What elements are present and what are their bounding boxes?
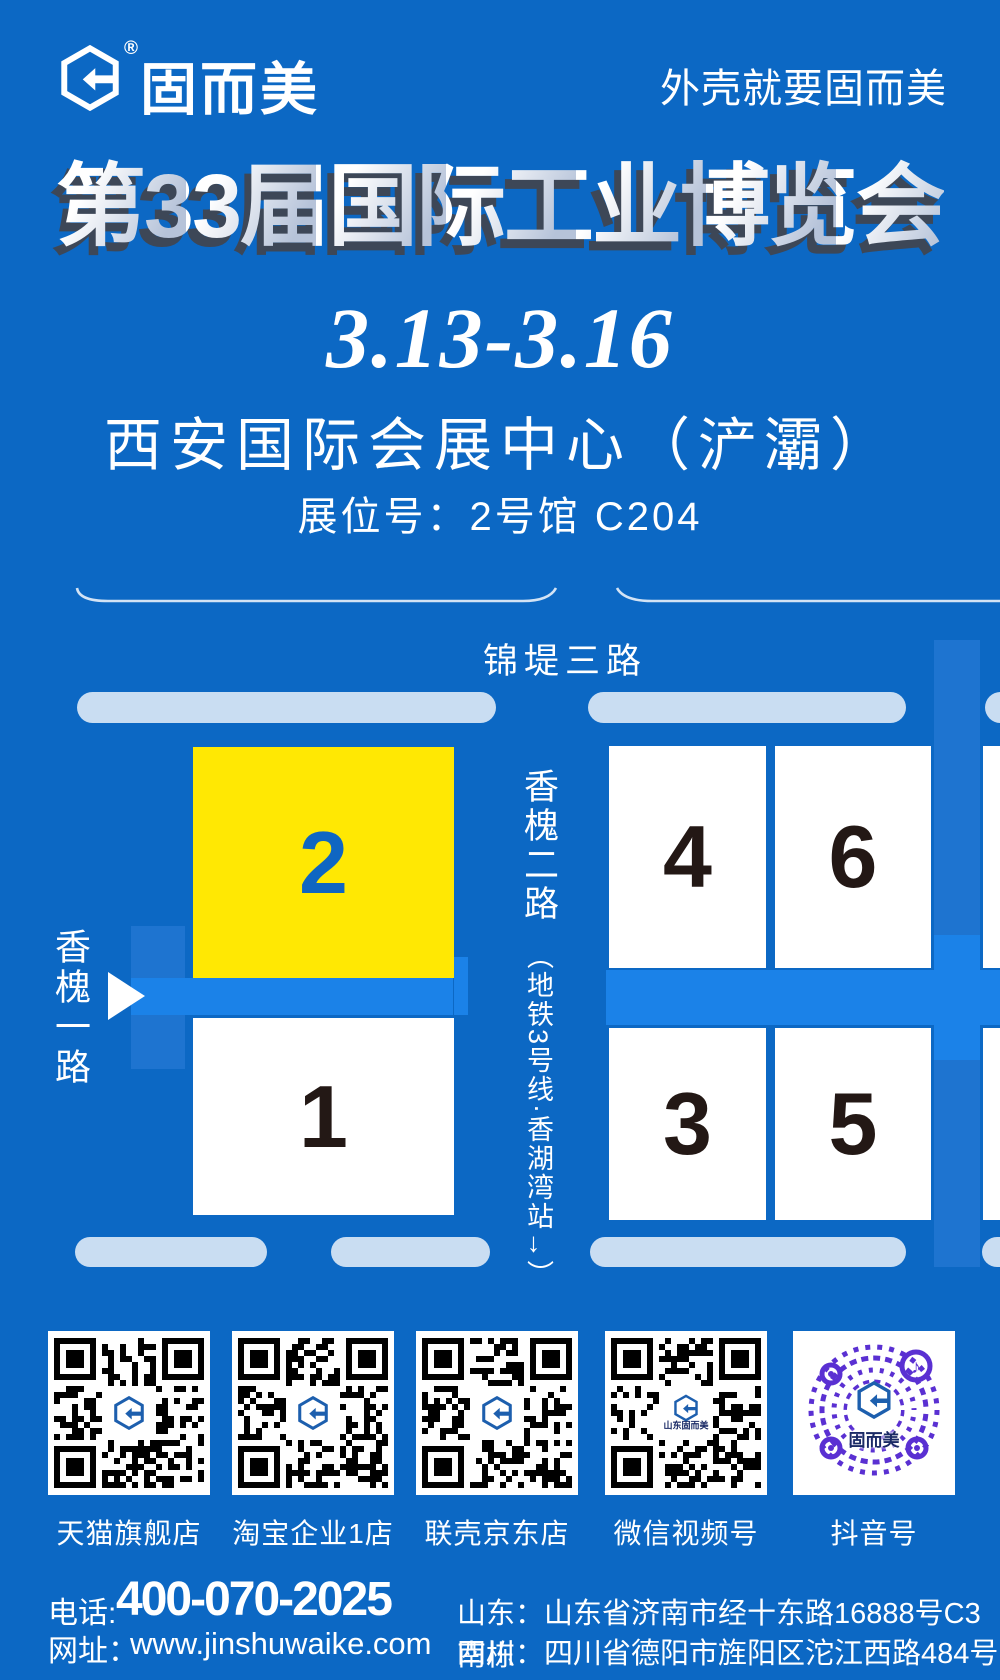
qr-label-tmall: 天猫旗舰店 <box>48 1512 210 1552</box>
hall-number: 3 <box>663 1073 712 1175</box>
qr-code-jd <box>416 1331 578 1495</box>
map-metro-line-label: （地铁3号线·香湖湾站→） <box>519 942 558 1289</box>
brand-hexagon-logo-icon <box>672 1395 699 1422</box>
map-hall-5: 5 <box>775 1028 931 1220</box>
qr-center-logo: 山东固而美 <box>663 1395 708 1432</box>
map-road-notch <box>454 957 468 1015</box>
qr-code-taobao <box>232 1331 394 1495</box>
map-road-bar <box>77 692 496 723</box>
map-hall-4: 4 <box>609 746 766 968</box>
map-road-bar <box>985 692 1000 723</box>
qr-label-taobao: 淘宝企业1店 <box>232 1512 394 1552</box>
map-hall-partial-bottom <box>983 1028 1000 1220</box>
svg-text:♪: ♪ <box>911 1357 921 1378</box>
brand-hexagon-logo-icon <box>480 1396 514 1430</box>
map-road-bar <box>590 1237 906 1267</box>
phone-number: 400-070-2025 <box>116 1572 391 1627</box>
website-url: www.jinshuwaike.com <box>130 1626 432 1662</box>
map-road-xianghuaierlu-label: 香槐二路 <box>513 768 564 924</box>
expo-title-text: 第33届国际工业博览会 <box>56 157 944 257</box>
map-top-curve-lines <box>0 575 1000 615</box>
map-road-bar <box>75 1237 267 1267</box>
hall-number: 6 <box>829 806 878 908</box>
map-hall-2-highlighted: 2 <box>193 747 454 978</box>
expo-venue: 西安国际会展中心（浐灞） <box>0 398 1000 482</box>
brand-hexagon-logo-icon <box>855 1381 893 1419</box>
map-hall-1: 1 <box>193 1018 454 1215</box>
map-hall-partial-top <box>983 746 1000 968</box>
qr-code-tmall <box>48 1331 210 1495</box>
qr-center-logo <box>480 1396 514 1430</box>
expo-title: 第33届国际工业博览会 第33届国际工业博览会 <box>0 158 1000 257</box>
brand-tagline: 外壳就要固而美 <box>660 56 947 114</box>
brand-name: 固而美 <box>140 44 320 126</box>
hall-number: 5 <box>829 1073 878 1175</box>
hall-number: 1 <box>299 1066 348 1168</box>
brand-hexagon-logo-icon <box>296 1396 330 1430</box>
map-hall-3: 3 <box>609 1028 766 1220</box>
brand-hexagon-logo-icon <box>112 1396 146 1430</box>
qr-center-text: 山东固而美 <box>663 1422 708 1432</box>
registered-trademark-symbol: ® <box>124 38 138 60</box>
map-road-bar <box>331 1237 490 1267</box>
website-label: 网址： <box>48 1626 138 1670</box>
map-horizontal-road-left <box>131 978 453 1015</box>
qr-center-text: 固而美 <box>793 1426 955 1451</box>
map-road-bar <box>982 1237 1000 1267</box>
qr-code-douyin: ♪ 固而美 <box>793 1331 955 1495</box>
map-road-xianghuaiyilu-label: 香槐一路 <box>44 928 96 1088</box>
qr-label-wechat-video: 微信视频号 <box>605 1512 767 1552</box>
qr-label-jd: 联壳京东店 <box>416 1512 578 1552</box>
map-hall-6: 6 <box>775 746 931 968</box>
qr-code-wechat-video: 山东固而美 <box>605 1331 767 1495</box>
booth-number: 展位号：2号馆 C204 <box>0 484 1000 542</box>
hall-number: 2 <box>299 812 348 914</box>
qr-center-logo <box>296 1396 330 1430</box>
address-sichuan: 四川：四川省德阳市旌阳区沱江西路484号5栋4号 <box>457 1630 1000 1680</box>
qr-center-logo <box>112 1396 146 1430</box>
brand-hexagon-logo-icon <box>57 42 123 114</box>
expo-poster: ® 固而美 外壳就要固而美 第33届国际工业博览会 第33届国际工业博览会 3.… <box>0 0 1000 1680</box>
map-road-jinditsanlu-label: 锦堤三路 <box>415 633 715 684</box>
hall-number: 4 <box>663 806 712 908</box>
map-entrance-arrow-icon <box>108 972 145 1020</box>
map-road-intersection <box>934 935 980 1060</box>
expo-dates: 3.13-3.16 <box>0 288 1000 388</box>
qr-label-douyin: 抖音号 <box>793 1512 955 1552</box>
map-road-bar <box>588 692 906 723</box>
